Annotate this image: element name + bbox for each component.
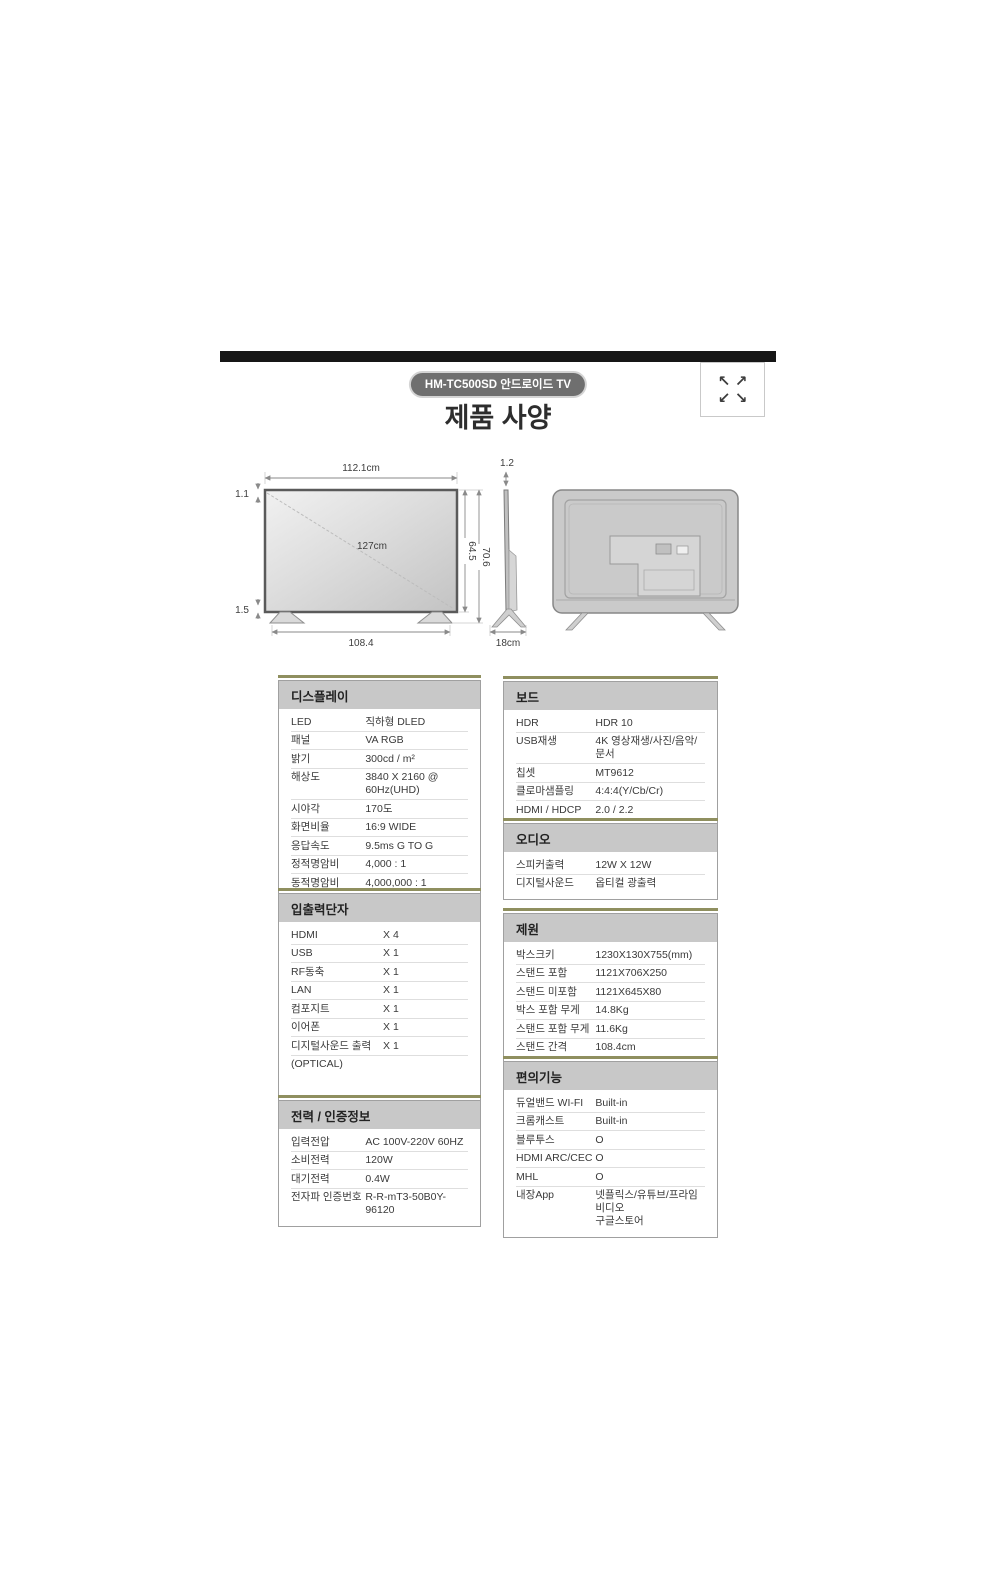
spec-label: 패널 bbox=[291, 734, 365, 747]
spec-value: 9.5ms G TO G bbox=[365, 840, 468, 853]
spec-row: 스탠드 미포함1121X645X80 bbox=[516, 983, 705, 1002]
spec-value: X 1 bbox=[383, 984, 468, 997]
table-accent-bar bbox=[503, 818, 718, 821]
dimension-label-width: 112.1cm bbox=[342, 463, 380, 474]
table-title: 입출력단자 bbox=[279, 894, 480, 922]
spec-value: HDR 10 bbox=[595, 717, 705, 730]
spec-row: 해상도3840 X 2160 @ 60Hz(UHD) bbox=[291, 769, 468, 801]
spec-label: 내장App bbox=[516, 1189, 595, 1202]
table-title: 편의기능 bbox=[504, 1062, 717, 1090]
spec-label: 전자파 인증번호 bbox=[291, 1191, 365, 1204]
spec-table-audio: 오디오 스피커출력12W X 12W디지털사운드옵티컬 광출력 bbox=[503, 818, 718, 900]
spec-label: 대기전력 bbox=[291, 1173, 365, 1186]
spec-value: 4:4:4(Y/Cb/Cr) bbox=[595, 785, 705, 798]
spec-value: 16:9 WIDE bbox=[365, 821, 468, 834]
dimension-label-thickness: 1.2 bbox=[500, 458, 514, 469]
spec-row: LANX 1 bbox=[291, 982, 468, 1001]
spec-value: 2.0 / 2.2 bbox=[595, 804, 705, 817]
spec-row: USB재생4K 영상재생/사진/음악/문서 bbox=[516, 733, 705, 765]
spec-label: 정적명암비 bbox=[291, 858, 365, 871]
diagonal-size-label: 127cm bbox=[357, 541, 387, 552]
spec-row: 스탠드 간격108.4cm bbox=[516, 1039, 705, 1057]
table-rows: HDMIX 4USBX 1RF동축X 1LANX 1컴포지트X 1이어폰X 1디… bbox=[279, 922, 480, 1103]
spec-label: 스탠드 미포함 bbox=[516, 986, 595, 999]
spec-value: 14.8Kg bbox=[595, 1004, 705, 1017]
front-right-leg bbox=[418, 612, 452, 623]
spec-row: 대기전력0.4W bbox=[291, 1170, 468, 1189]
arrow-nw-icon: ↖ bbox=[716, 373, 733, 390]
spec-table-display: 디스플레이 LED직하형 DLED패널VA RGB밝기300cd / m²해상도… bbox=[278, 675, 481, 900]
spec-value: 4K 영상재생/사진/음악/문서 bbox=[595, 735, 705, 761]
dimension-label-total-height: 70.6 bbox=[480, 547, 491, 567]
page-title: 제품 사양 bbox=[445, 396, 552, 435]
spec-label: 칩셋 bbox=[516, 767, 595, 780]
spec-value: 1121X645X80 bbox=[595, 986, 705, 999]
table-rows: LED직하형 DLED패널VA RGB밝기300cd / m²해상도3840 X… bbox=[279, 709, 480, 899]
spec-table-features: 편의기능 듀얼밴드 WI-FIBuilt-in크롬캐스트Built-in블루투스… bbox=[503, 1056, 718, 1238]
spec-label: 블루투스 bbox=[516, 1134, 595, 1147]
table-accent-bar bbox=[278, 888, 481, 891]
spec-row: (OPTICAL) bbox=[291, 1056, 468, 1074]
spec-value: MT9612 bbox=[595, 767, 705, 780]
spec-row: USBX 1 bbox=[291, 945, 468, 964]
spec-label: 디지털사운드 bbox=[516, 877, 595, 890]
dimension-top-width: 112.1cm bbox=[265, 463, 457, 484]
spec-value: AC 100V-220V 60HZ bbox=[365, 1136, 468, 1149]
dimension-top-bezel: 1.1 bbox=[235, 483, 258, 503]
spec-row: 박스크키1230X130X755(mm) bbox=[516, 946, 705, 965]
spec-label: 입력전압 bbox=[291, 1136, 365, 1149]
tv-side-view: 1.2 18cm bbox=[490, 458, 526, 649]
spec-row: 입력전압AC 100V-220V 60HZ bbox=[291, 1133, 468, 1152]
table-title: 제원 bbox=[504, 914, 717, 942]
spec-label: LAN bbox=[291, 984, 383, 997]
back-right-leg bbox=[703, 613, 725, 630]
spec-row: 스피커출력12W X 12W bbox=[516, 856, 705, 875]
spec-value: X 1 bbox=[383, 966, 468, 979]
spec-row: 화면비율16:9 WIDE bbox=[291, 819, 468, 838]
spec-row: 디지털사운드 출력X 1 bbox=[291, 1037, 468, 1056]
spec-row: 응답속도9.5ms G TO G bbox=[291, 837, 468, 856]
top-divider-bar bbox=[220, 351, 776, 362]
dimension-thickness: 1.2 bbox=[500, 458, 514, 486]
table-rows: 박스크키1230X130X755(mm)스탠드 포함1121X706X250스탠… bbox=[504, 942, 717, 1063]
spec-label: 스피커출력 bbox=[516, 859, 595, 872]
spec-row: 박스 포함 무게14.8Kg bbox=[516, 1002, 705, 1021]
table-accent-bar bbox=[503, 1056, 718, 1059]
spec-label: 응답속도 bbox=[291, 840, 365, 853]
dimension-depth: 18cm bbox=[490, 625, 526, 649]
table-title: 전력 / 인증정보 bbox=[279, 1101, 480, 1129]
spec-label: 해상도 bbox=[291, 771, 365, 784]
spec-label: 박스 포함 무게 bbox=[516, 1004, 595, 1017]
table-title: 보드 bbox=[504, 682, 717, 710]
side-stand-legs bbox=[492, 609, 526, 627]
arrow-ne-icon: ↗ bbox=[733, 373, 750, 390]
spec-label: 디지털사운드 출력 bbox=[291, 1040, 383, 1053]
spec-row: LED직하형 DLED bbox=[291, 713, 468, 732]
spec-label: 밝기 bbox=[291, 753, 365, 766]
spec-label: HDMI ARC/CEC bbox=[516, 1152, 595, 1165]
spec-value: 넷플릭스/유튜브/프라임비디오 구글스토어 bbox=[595, 1189, 705, 1228]
spec-value: O bbox=[595, 1171, 705, 1184]
spec-value: 108.4cm bbox=[595, 1041, 705, 1054]
table-rows: HDRHDR 10USB재생4K 영상재생/사진/음악/문서칩셋MT9612클로… bbox=[504, 710, 717, 826]
table-accent-bar bbox=[278, 1095, 481, 1098]
spec-value: X 1 bbox=[383, 1040, 468, 1053]
spec-label: HDMI bbox=[291, 929, 383, 942]
spec-row: 블루투스O bbox=[516, 1131, 705, 1150]
fullscreen-button[interactable]: ↖ ↗ ↙ ↘ bbox=[700, 362, 765, 417]
arrow-sw-icon: ↙ bbox=[716, 390, 733, 407]
table-title: 디스플레이 bbox=[279, 681, 480, 709]
spec-row: 정적명암비4,000 : 1 bbox=[291, 856, 468, 875]
spec-row: 디지털사운드옵티컬 광출력 bbox=[516, 875, 705, 893]
spec-value: 11.6Kg bbox=[595, 1023, 705, 1036]
spec-label: 스탠드 포함 bbox=[516, 967, 595, 980]
spec-label: MHL bbox=[516, 1171, 595, 1184]
spec-row: 컴포지트X 1 bbox=[291, 1000, 468, 1019]
table-accent-bar bbox=[503, 676, 718, 679]
spec-table-io: 입출력단자 HDMIX 4USBX 1RF동축X 1LANX 1컴포지트X 1이… bbox=[278, 888, 481, 1104]
spec-table-board: 보드 HDRHDR 10USB재생4K 영상재생/사진/음악/문서칩셋MT961… bbox=[503, 676, 718, 827]
dimension-label-stand-width: 108.4 bbox=[348, 638, 373, 649]
spec-label: 소비전력 bbox=[291, 1154, 365, 1167]
dimension-label-depth: 18cm bbox=[496, 638, 520, 649]
spec-value: X 1 bbox=[383, 947, 468, 960]
spec-label: USB재생 bbox=[516, 735, 595, 748]
spec-row: RF동축X 1 bbox=[291, 963, 468, 982]
spec-label: 화면비율 bbox=[291, 821, 365, 834]
spec-row: 크롬캐스트Built-in bbox=[516, 1113, 705, 1132]
spec-row: HDMIX 4 bbox=[291, 926, 468, 945]
spec-value: 300cd / m² bbox=[365, 753, 468, 766]
spec-value: Built-in bbox=[595, 1115, 705, 1128]
dimension-label-bottom-bezel: 1.5 bbox=[235, 605, 249, 616]
spec-row: 칩셋MT9612 bbox=[516, 764, 705, 783]
spec-row: 이어폰X 1 bbox=[291, 1019, 468, 1038]
table-rows: 입력전압AC 100V-220V 60HZ소비전력120W대기전력0.4W전자파… bbox=[279, 1129, 480, 1226]
expand-arrows-icon: ↖ ↗ ↙ ↘ bbox=[716, 373, 750, 407]
spec-label: 스탠드 간격 bbox=[516, 1041, 595, 1054]
spec-label: 컴포지트 bbox=[291, 1003, 383, 1016]
spec-label: LED bbox=[291, 716, 365, 729]
table-accent-bar bbox=[278, 675, 481, 678]
spec-table-dimensions: 제원 박스크키1230X130X755(mm)스탠드 포함1121X706X25… bbox=[503, 908, 718, 1064]
spec-row: 내장App넷플릭스/유튜브/프라임비디오 구글스토어 bbox=[516, 1187, 705, 1231]
spec-label: RF동축 bbox=[291, 966, 383, 979]
dimension-label-top-bezel: 1.1 bbox=[235, 489, 249, 500]
spec-label: HDR bbox=[516, 717, 595, 730]
model-badge: HM-TC500SD 안드로이드 TV bbox=[411, 373, 585, 396]
spec-row: HDMI ARC/CECO bbox=[516, 1150, 705, 1169]
dimension-bottom-bezel: 1.5 bbox=[235, 599, 258, 619]
spec-row: 패널VA RGB bbox=[291, 732, 468, 751]
spec-value: 0.4W bbox=[365, 1173, 468, 1186]
table-rows: 듀얼밴드 WI-FIBuilt-in크롬캐스트Built-in블루투스OHDMI… bbox=[504, 1090, 717, 1237]
spec-value: 12W X 12W bbox=[595, 859, 705, 872]
spec-value: X 4 bbox=[383, 929, 468, 942]
spec-label: 이어폰 bbox=[291, 1021, 383, 1034]
spec-value: O bbox=[595, 1134, 705, 1147]
spec-row: 듀얼밴드 WI-FIBuilt-in bbox=[516, 1094, 705, 1113]
tv-dimension-diagram: 127cm 112.1cm 1.1 1.5 bbox=[220, 450, 780, 655]
spec-row: 소비전력120W bbox=[291, 1152, 468, 1171]
spec-value: VA RGB bbox=[365, 734, 468, 747]
spec-value: X 1 bbox=[383, 1003, 468, 1016]
back-port-block bbox=[656, 544, 671, 554]
spec-row: 전자파 인증번호R-R-mT3-50B0Y-96120 bbox=[291, 1189, 468, 1220]
spec-label: 박스크키 bbox=[516, 949, 595, 962]
spec-value: O bbox=[595, 1152, 705, 1165]
spec-label: 듀얼밴드 WI-FI bbox=[516, 1097, 595, 1110]
spec-row: 스탠드 포함 무게11.6Kg bbox=[516, 1020, 705, 1039]
front-left-leg bbox=[270, 612, 304, 623]
spec-label: (OPTICAL) bbox=[291, 1058, 383, 1071]
spec-value: Built-in bbox=[595, 1097, 705, 1110]
spec-label: 스탠드 포함 무게 bbox=[516, 1023, 595, 1036]
spec-value: 1121X706X250 bbox=[595, 967, 705, 980]
table-rows: 스피커출력12W X 12W디지털사운드옵티컬 광출력 bbox=[504, 852, 717, 899]
spec-value: 170도 bbox=[365, 803, 468, 816]
spec-label: 클로마샘플링 bbox=[516, 785, 595, 798]
spec-row: MHLO bbox=[516, 1168, 705, 1187]
dimension-label-panel-height: 64.5 bbox=[466, 541, 477, 561]
spec-value: 4,000 : 1 bbox=[365, 858, 468, 871]
spec-value: 120W bbox=[365, 1154, 468, 1167]
side-back-bulge bbox=[509, 550, 517, 612]
spec-table-power: 전력 / 인증정보 입력전압AC 100V-220V 60HZ소비전력120W대… bbox=[278, 1095, 481, 1227]
spec-row: HDMI / HDCP2.0 / 2.2 bbox=[516, 801, 705, 819]
spec-value: X 1 bbox=[383, 1021, 468, 1034]
spec-row: 클로마샘플링4:4:4(Y/Cb/Cr) bbox=[516, 783, 705, 802]
tv-front-view: 127cm 112.1cm 1.1 1.5 bbox=[235, 463, 491, 649]
spec-value: 3840 X 2160 @ 60Hz(UHD) bbox=[365, 771, 468, 797]
spec-row: 스탠드 포함1121X706X250 bbox=[516, 965, 705, 984]
spec-value: 1230X130X755(mm) bbox=[595, 949, 705, 962]
product-spec-page: ↖ ↗ ↙ ↘ HM-TC500SD 안드로이드 TV 제품 사양 127cm bbox=[0, 0, 1000, 1581]
spec-row: 밝기300cd / m² bbox=[291, 750, 468, 769]
tv-back-view bbox=[553, 490, 738, 630]
table-title: 오디오 bbox=[504, 824, 717, 852]
spec-value: R-R-mT3-50B0Y-96120 bbox=[365, 1191, 468, 1217]
dimension-stand-width: 108.4 bbox=[272, 625, 450, 649]
spec-label: USB bbox=[291, 947, 383, 960]
back-port-block-2 bbox=[677, 546, 688, 554]
arrow-se-icon: ↘ bbox=[733, 390, 750, 407]
spec-label: HDMI / HDCP bbox=[516, 804, 595, 817]
spec-value: 직하형 DLED bbox=[365, 716, 468, 729]
spec-label: 크롬캐스트 bbox=[516, 1115, 595, 1128]
table-accent-bar bbox=[503, 908, 718, 911]
spec-value: 옵티컬 광출력 bbox=[595, 877, 705, 890]
spec-row: 시야각170도 bbox=[291, 800, 468, 819]
spec-label: 시야각 bbox=[291, 803, 365, 816]
back-left-leg bbox=[566, 613, 588, 630]
spec-row: HDRHDR 10 bbox=[516, 714, 705, 733]
